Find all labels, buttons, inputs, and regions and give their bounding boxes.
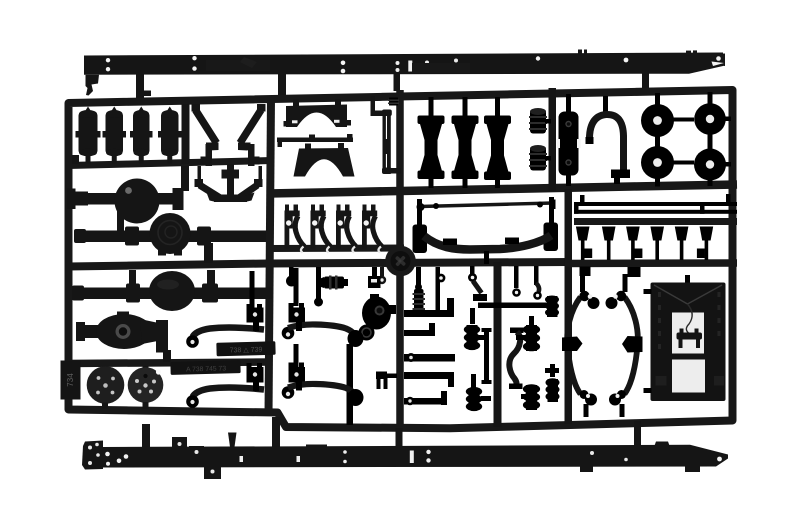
svg-text:738 △ 739: 738 △ 739	[230, 347, 263, 355]
svg-text:734: 734	[66, 373, 75, 387]
svg-text:A 738 745 73: A 738 745 73	[186, 365, 226, 373]
